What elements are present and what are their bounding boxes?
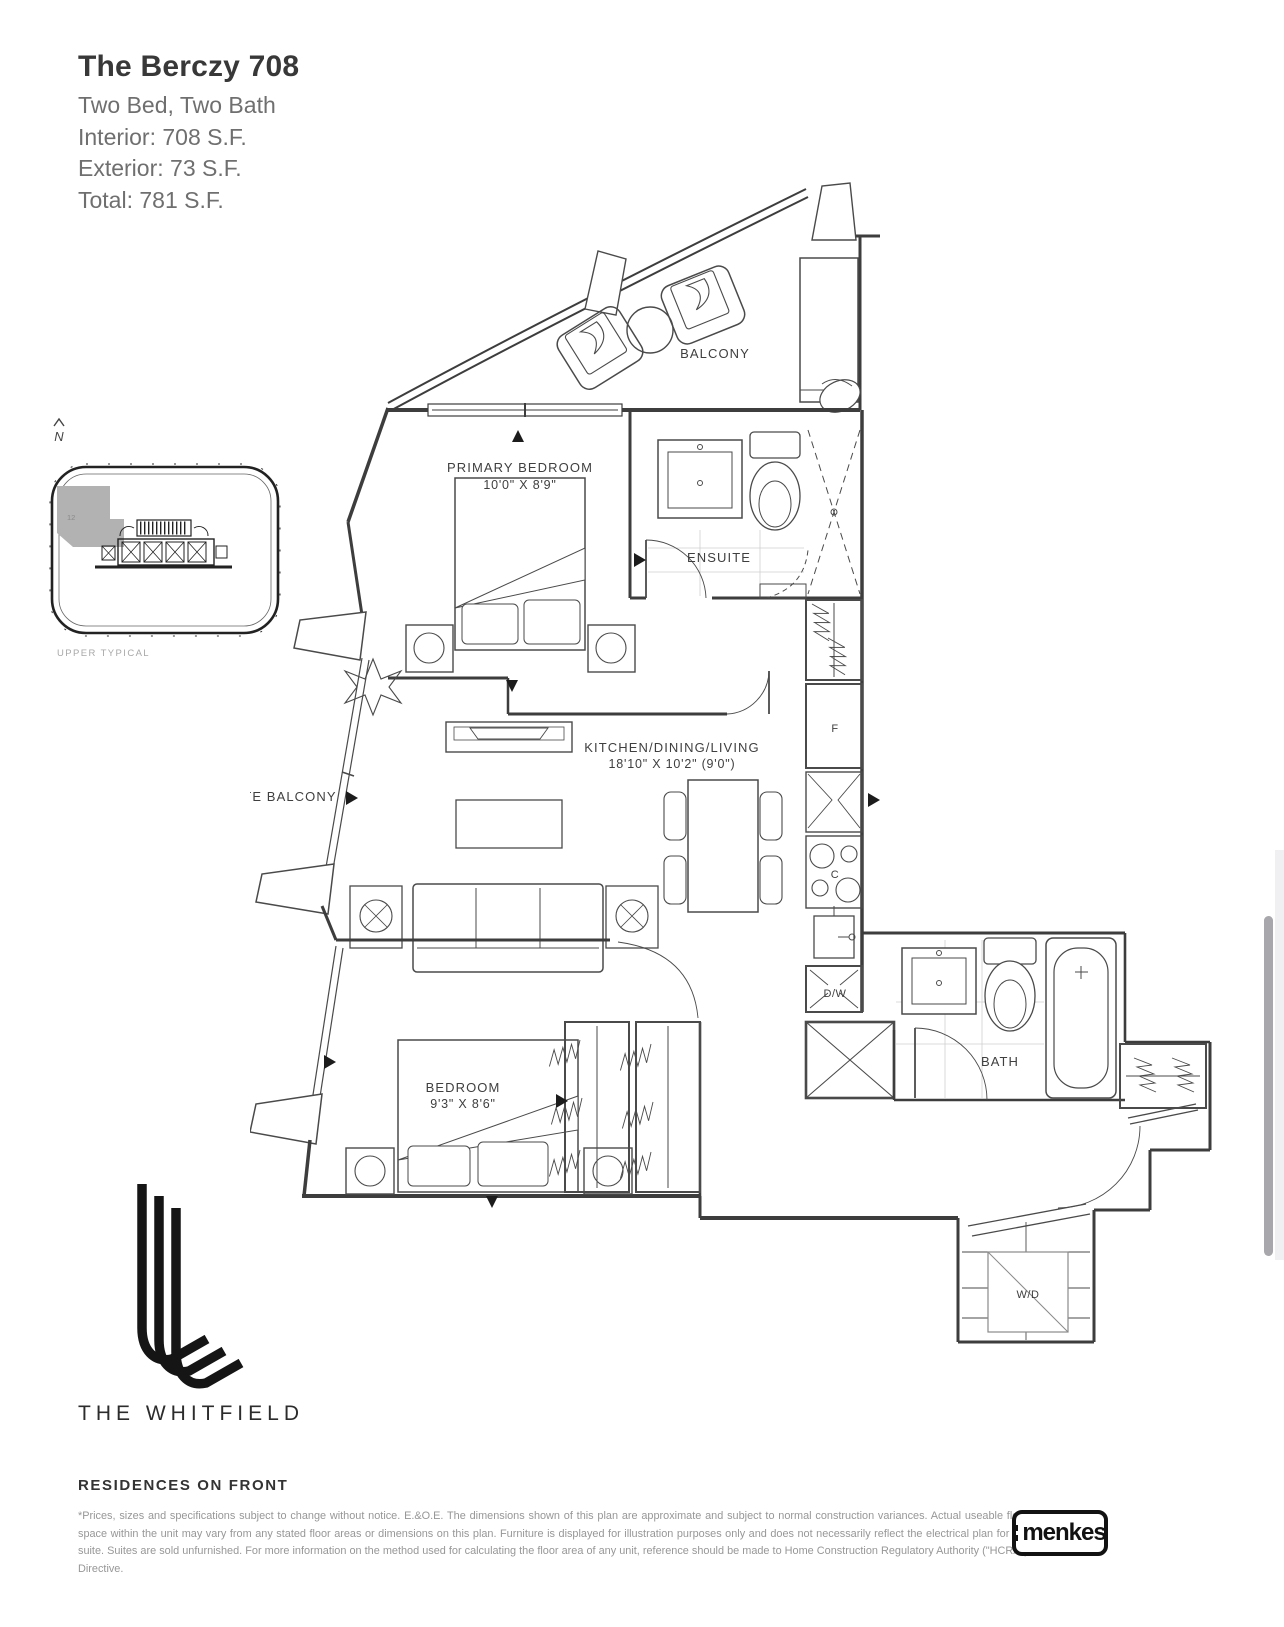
kitchen-dims: 18'10" X 10'2" (9'0") [609,757,736,771]
floor-plan-drawing: BALCONY [250,170,1230,1380]
balcony-armchair-2 [658,263,748,347]
kitchen-strip: F C D/W [806,600,894,1098]
brand-tagline: RESIDENCES ON FRONT [78,1477,288,1494]
whitfield-logo-icon [108,1178,268,1408]
brand-name: THE WHITFIELD [78,1402,304,1426]
scrollbar-track[interactable] [1275,850,1284,1260]
floorplan-page: { "header": { "title": "The Berczy 708",… [0,0,1284,1627]
balcony-table [627,307,673,353]
primary-bedroom-dims: 10'0" X 8'9" [483,478,556,492]
unit-marker: 12 [67,513,75,522]
north-arrow-icon: N [54,419,64,444]
unit-highlight: 12 [57,486,124,547]
menkes-logo: menkes [1012,1510,1108,1556]
north-label: N [54,429,64,444]
main-bath: BATH [894,938,1125,1100]
bedroom-label: BEDROOM [426,1080,501,1095]
primary-bedroom-label: PRIMARY BEDROOM [447,460,593,475]
opening-markers [324,430,880,1208]
second-bedroom: BEDROOM 9'3" X 8'6" [336,940,700,1196]
legal-disclaimer: *Prices, sizes and specifications subjec… [78,1508,1028,1579]
menkes-logo-ticks [1014,1525,1018,1541]
balcony-label: BALCONY [680,346,750,361]
ensuite-label: ENSUITE [687,550,751,565]
bath-label: BATH [981,1054,1019,1069]
balcony-armchair-1 [553,303,647,394]
juliette-balcony-label: JULIETTE BALCONY [250,789,337,804]
exterior-walls [250,403,1210,1342]
balcony-area: BALCONY [388,183,880,418]
bedroom-dims: 9'3" X 8'6" [430,1097,496,1111]
ensuite: ENSUITE [630,430,862,598]
washer-dryer-label: W/D [1017,1289,1040,1301]
unit-title: The Berczy 708 [78,50,299,84]
key-plan-caption: UPPER TYPICAL [57,648,150,659]
kitchen-label: KITCHEN/DINING/LIVING [584,740,760,755]
fridge-label: F [831,723,838,735]
scrollbar-thumb[interactable] [1264,916,1273,1256]
menkes-logo-text: menkes [1022,1519,1105,1547]
dishwasher-label: D/W [824,988,847,1000]
balcony-daybed [800,258,865,418]
unit-type: Two Bed, Two Bath [78,90,299,122]
cooktop-label: C [831,869,839,881]
unit-interior-area: Interior: 708 S.F. [78,122,299,154]
